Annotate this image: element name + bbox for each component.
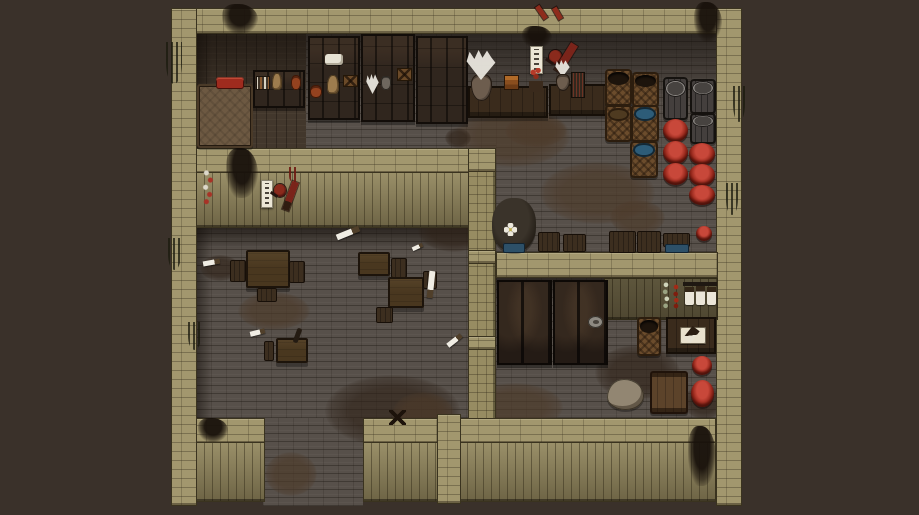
white-cloth[interactable]: [325, 54, 343, 65]
wall-bottom-face-right: [363, 442, 716, 502]
wall-bottom-face-left: [196, 442, 265, 502]
hanging-chilis[interactable]: [673, 284, 679, 309]
wicker-barrel[interactable]: [637, 317, 661, 356]
wall-vertical: [468, 148, 496, 420]
wall-flail[interactable]: [274, 184, 286, 197]
dining-table[interactable]: [388, 277, 424, 308]
hanging-cleaver[interactable]: [696, 286, 705, 305]
wall-bottom-cap-right: [363, 418, 716, 444]
wall2-cap: [496, 252, 718, 278]
water-barrel[interactable]: [631, 105, 659, 142]
chair[interactable]: [289, 261, 305, 283]
gray-jar[interactable]: [381, 76, 391, 90]
arrow-quiver[interactable]: [571, 72, 585, 98]
hanging-herbs[interactable]: [662, 282, 670, 310]
chair[interactable]: [609, 231, 636, 253]
small-sack[interactable]: [327, 75, 339, 94]
blood-splatter: [226, 148, 258, 198]
wall-right: [716, 8, 742, 506]
chair[interactable]: [391, 258, 407, 278]
orange-books[interactable]: [504, 75, 519, 90]
wall-vine: [168, 238, 181, 270]
wall-vertical-band: [468, 148, 496, 172]
chair[interactable]: [376, 307, 393, 323]
metal-barrel[interactable]: [690, 79, 716, 114]
oval-sign[interactable]: [588, 316, 603, 328]
red-bowl[interactable]: [689, 185, 715, 205]
game-scene[interactable]: [0, 0, 919, 515]
dining-table[interactable]: [358, 252, 390, 276]
wall-stain: [522, 26, 552, 48]
hanging-cleaver[interactable]: [685, 287, 694, 305]
hanging-cleaver[interactable]: [707, 287, 716, 305]
red-bowl[interactable]: [692, 356, 712, 375]
red-bowl[interactable]: [696, 226, 712, 241]
bed-mat[interactable]: [197, 84, 253, 148]
chair[interactable]: [257, 288, 277, 302]
wood-barrel[interactable]: [605, 105, 632, 142]
shelf-red-jar[interactable]: [291, 75, 301, 90]
small-crate[interactable]: [397, 68, 412, 81]
banded-crate[interactable]: [650, 371, 688, 414]
wall-vine: [188, 322, 201, 350]
red-bowl[interactable]: [663, 119, 688, 142]
metal-barrel[interactable]: [690, 113, 716, 144]
wall-vine: [726, 183, 738, 215]
metal-barrel[interactable]: [663, 77, 688, 120]
red-bowl[interactable]: [689, 164, 715, 186]
red-pot[interactable]: [310, 85, 322, 98]
wall-vine: [733, 86, 745, 122]
dining-table[interactable]: [246, 250, 290, 288]
chair[interactable]: [637, 231, 661, 253]
gray-sack[interactable]: [607, 379, 644, 410]
red-bowl[interactable]: [663, 141, 688, 164]
shelf-sack[interactable]: [272, 73, 282, 90]
ornate-wardrobe[interactable]: [497, 280, 552, 365]
chair[interactable]: [538, 232, 560, 252]
red-bowl[interactable]: [663, 163, 688, 185]
mud-patch: [610, 200, 665, 235]
stool[interactable]: [264, 341, 274, 361]
mud-patch: [505, 115, 567, 147]
white-flower[interactable]: [504, 223, 517, 236]
wardrobe[interactable]: [416, 36, 468, 124]
chair[interactable]: [230, 260, 246, 282]
wall-crack: [688, 426, 716, 486]
wall-stain: [694, 2, 722, 42]
wall-stain: [222, 4, 258, 34]
wicker-basket[interactable]: [605, 69, 632, 106]
chair[interactable]: [563, 234, 586, 252]
small-crate[interactable]: [343, 75, 358, 87]
crossed-sticks: [389, 410, 406, 425]
wall-vertical-band: [468, 250, 496, 264]
mud-patch: [265, 452, 317, 496]
blue-cushion[interactable]: [665, 244, 689, 253]
red-bowl[interactable]: [691, 380, 714, 407]
red-bowl[interactable]: [689, 143, 715, 165]
mud-patch: [445, 128, 471, 148]
wall-bottom-pillar: [437, 414, 461, 504]
potted-red-flower[interactable]: [529, 68, 543, 92]
water-barrel[interactable]: [630, 141, 658, 178]
blood-drips: [289, 167, 299, 182]
blue-cushion[interactable]: [503, 243, 525, 253]
wicker-basket[interactable]: [632, 72, 659, 107]
bed-pillow[interactable]: [216, 77, 244, 89]
wall-vine: [166, 42, 182, 84]
shelf-books[interactable]: [256, 76, 270, 90]
wall-crack: [198, 418, 228, 442]
hanging-flower-strand: [200, 170, 216, 206]
wall-vertical-band: [468, 336, 496, 350]
dining-table[interactable]: [276, 338, 308, 363]
